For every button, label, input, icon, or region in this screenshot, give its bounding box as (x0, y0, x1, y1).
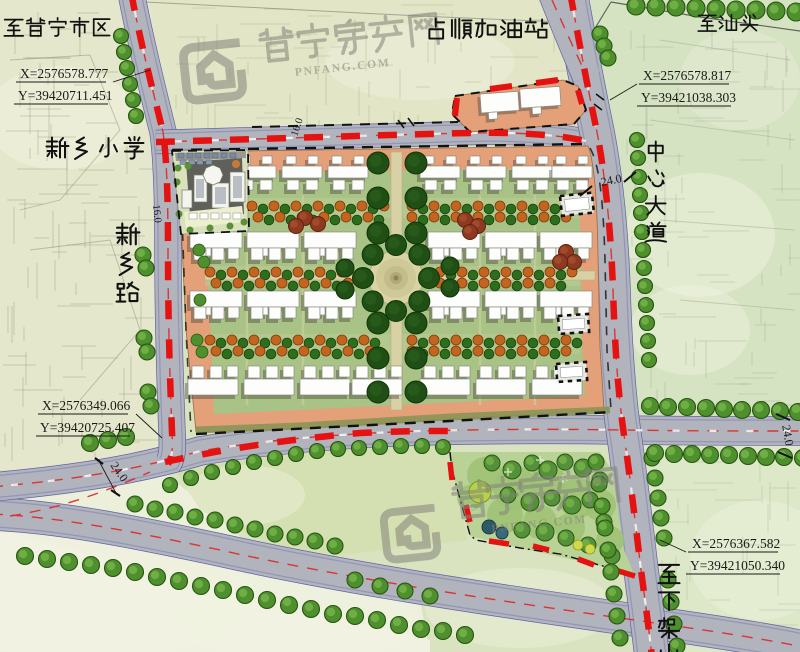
svg-text:Y=39420725.407: Y=39420725.407 (40, 420, 135, 435)
svg-text:Y=39421050.340: Y=39421050.340 (690, 558, 785, 573)
svg-text:16.0: 16.0 (150, 204, 163, 223)
svg-text:Y=39421038.303: Y=39421038.303 (641, 90, 736, 105)
svg-text:X=2576578.777: X=2576578.777 (20, 66, 108, 81)
svg-text:X=2576349.066: X=2576349.066 (42, 398, 130, 413)
svg-text:X=2576367.582: X=2576367.582 (692, 536, 780, 551)
svg-text:X=2576578.817: X=2576578.817 (643, 68, 731, 83)
svg-text:Y=39420711.451: Y=39420711.451 (18, 88, 113, 103)
